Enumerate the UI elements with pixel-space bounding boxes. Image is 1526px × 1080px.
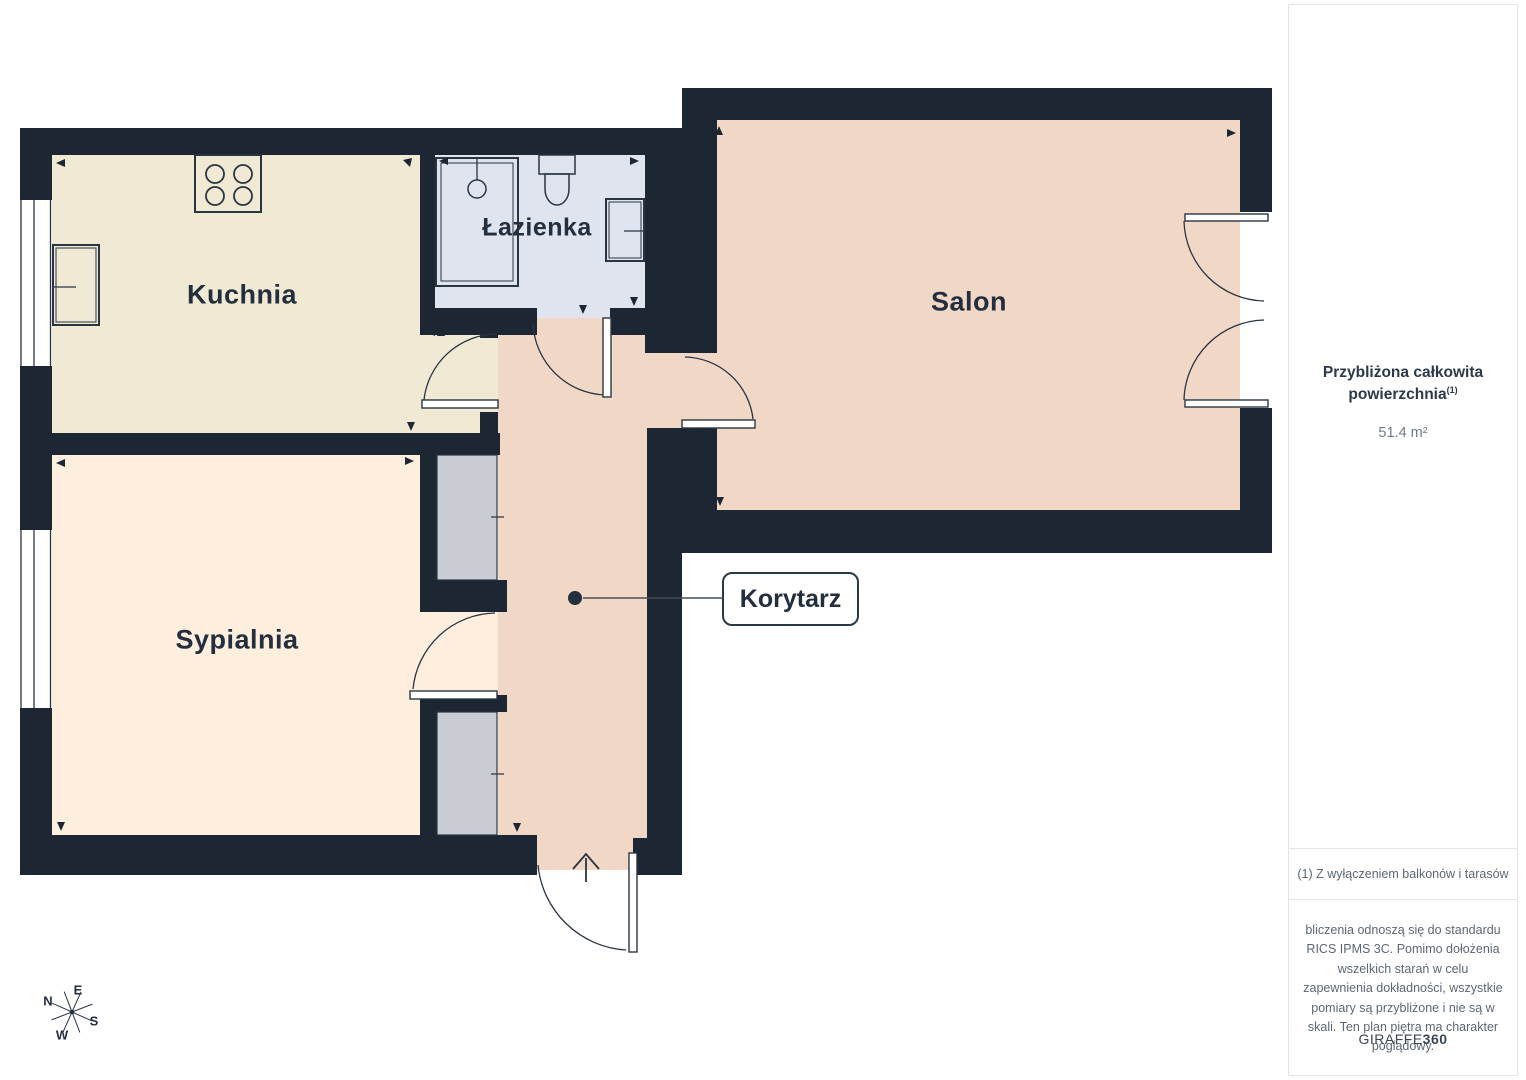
footnote-text: (1) Z wyłączeniem balkonów i tarasów — [1297, 867, 1508, 881]
salon-doorway-floor — [647, 353, 717, 428]
area-title-footnote-ref: (1) — [1447, 385, 1458, 395]
area-title-line2: powierzchnia — [1348, 387, 1446, 404]
floorplan-page: { "plan": { "rooms": { "kitchen": { "lab… — [0, 0, 1526, 1080]
stove-icon — [195, 155, 261, 212]
bedroom-window — [20, 530, 52, 708]
area-title: Przybliżona całkowita powierzchnia(1) — [1289, 362, 1517, 407]
corridor-label: Korytarz — [740, 585, 841, 614]
salon-label: Salon — [931, 287, 1007, 318]
brand-regular: GIRAFFE — [1358, 1031, 1422, 1047]
compass-w: W — [56, 1028, 68, 1043]
compass-s: S — [90, 1014, 99, 1029]
footnote: (1) Z wyłączeniem balkonów i tarasów — [1289, 848, 1517, 900]
bedroom-floor-door-strip — [420, 612, 498, 695]
brand-bold: 360 — [1423, 1031, 1448, 1047]
compass-icon — [43, 983, 101, 1041]
bedroom-label: Sypialnia — [175, 625, 298, 656]
corridor-leader-dot — [568, 591, 582, 605]
bathroom-label: Łazienka — [482, 214, 592, 243]
total-area-value: 51.4 m² — [1289, 425, 1517, 441]
kitchen-window — [20, 200, 52, 366]
compass-e: E — [74, 983, 83, 998]
closet-lower — [437, 712, 497, 835]
corridor-label-box: Korytarz — [722, 572, 859, 626]
kitchen-label: Kuchnia — [187, 280, 297, 311]
closet-upper — [437, 455, 497, 580]
info-sidebar: Przybliżona całkowita powierzchnia(1) 51… — [1288, 4, 1518, 1076]
giraffe360-logo: GIRAFFE360 — [1289, 1031, 1517, 1047]
area-title-line1: Przybliżona całkowita — [1323, 364, 1483, 381]
compass-n: N — [43, 994, 52, 1009]
